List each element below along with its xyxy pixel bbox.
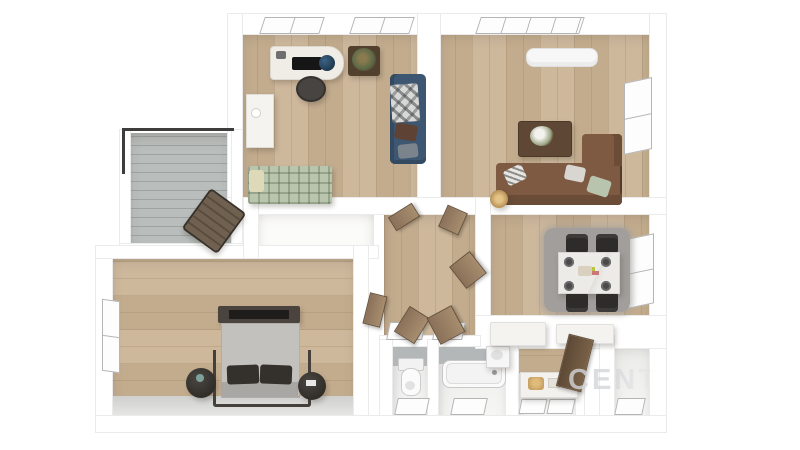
wall-bedroom-right bbox=[354, 246, 368, 422]
living-room-window-top bbox=[475, 17, 585, 34]
dresser-item bbox=[251, 108, 261, 118]
sink-basin bbox=[491, 350, 503, 360]
dining-room-window-right bbox=[628, 233, 654, 309]
plant-icon bbox=[352, 48, 376, 71]
wall-right bbox=[650, 14, 666, 422]
sofa-pillow-gray bbox=[397, 143, 418, 159]
wall-wc-left bbox=[380, 340, 392, 424]
dining-chair-1 bbox=[566, 234, 588, 254]
closet-nook-floor bbox=[256, 210, 374, 248]
bed-pillow-right bbox=[260, 364, 293, 384]
place-settings-icon bbox=[578, 266, 592, 276]
wall-bottom bbox=[96, 416, 666, 432]
bedroom-window-left bbox=[102, 299, 120, 374]
dining-chair-3 bbox=[566, 292, 588, 312]
bathtub-drain bbox=[492, 370, 497, 375]
office-window-1 bbox=[259, 17, 325, 34]
wall-bedroom-top bbox=[96, 246, 378, 258]
wc-window bbox=[394, 398, 430, 415]
desk-clutter-icon bbox=[276, 51, 286, 59]
plate-3 bbox=[564, 281, 574, 291]
watermark-text: CENT bbox=[568, 364, 659, 397]
plaid-blanket bbox=[390, 83, 421, 123]
dresser bbox=[246, 94, 274, 148]
nightstand-left-item bbox=[196, 374, 204, 382]
balcony-railing-top bbox=[122, 128, 234, 131]
desk-globe bbox=[319, 55, 335, 71]
kitchen-basket-icon bbox=[528, 377, 544, 390]
floor-plan-canvas: CENT bbox=[0, 0, 800, 450]
dining-chair-2 bbox=[596, 234, 618, 254]
desk-monitor bbox=[292, 57, 322, 70]
bed-tv-screen bbox=[229, 310, 289, 319]
balcony-railing-left bbox=[122, 128, 125, 174]
bathroom-window bbox=[450, 398, 488, 415]
living-room-window-right bbox=[624, 77, 652, 155]
toilet-seat bbox=[405, 381, 415, 390]
sofa-chaise bbox=[582, 134, 622, 166]
table-flowers-icon bbox=[530, 126, 554, 146]
plate-4 bbox=[601, 281, 611, 291]
utility-room-window bbox=[614, 398, 646, 415]
nightstand-left bbox=[186, 368, 216, 398]
nightstand-right bbox=[298, 372, 326, 400]
dining-chair-4 bbox=[596, 292, 618, 312]
nightstand-right-item bbox=[306, 380, 316, 386]
kitchen-counter-left bbox=[490, 322, 546, 346]
kitchen-window-2 bbox=[546, 399, 575, 414]
wall-closet-left bbox=[244, 198, 258, 258]
air-conditioner bbox=[526, 48, 598, 67]
daybed-pillow bbox=[249, 170, 264, 192]
plate-1 bbox=[564, 257, 574, 267]
office-chair bbox=[296, 76, 326, 102]
bed-pillow-left bbox=[227, 364, 260, 384]
kitchen-window-1 bbox=[518, 399, 547, 414]
office-window-2 bbox=[349, 17, 415, 34]
basket-lamp bbox=[490, 190, 508, 208]
wall-wc-bath bbox=[428, 340, 438, 424]
plate-2 bbox=[601, 257, 611, 267]
